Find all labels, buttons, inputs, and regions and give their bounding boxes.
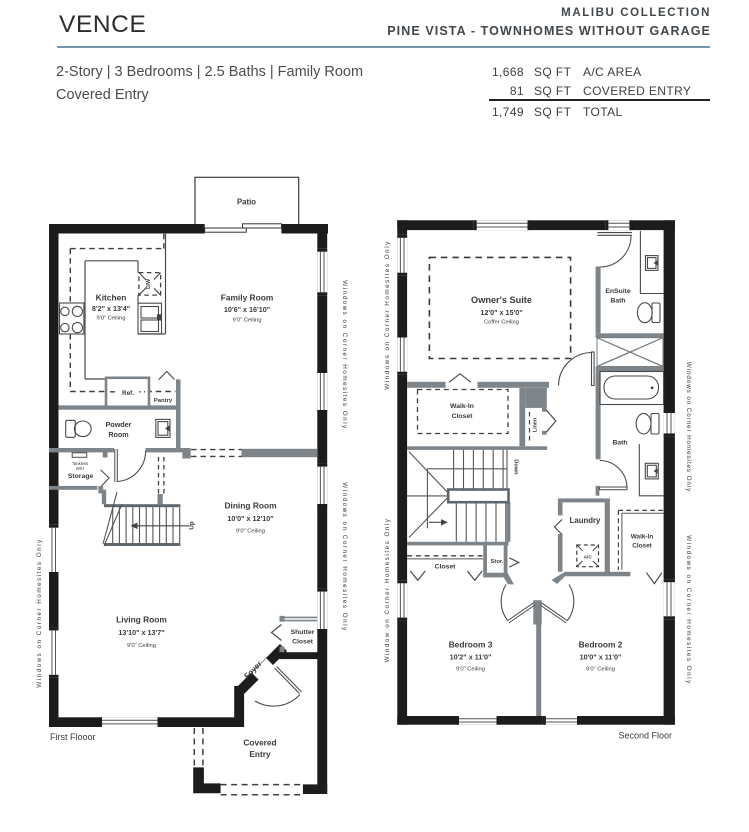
- svg-text:Kitchen: Kitchen: [96, 293, 127, 303]
- svg-text:Entry: Entry: [249, 749, 271, 759]
- svg-text:Second Floor: Second Floor: [618, 731, 672, 741]
- svg-text:Bedroom 3: Bedroom 3: [449, 640, 493, 650]
- svg-text:9'0" Ceiling: 9'0" Ceiling: [233, 318, 262, 324]
- svg-text:9'0" Ceiling: 9'0" Ceiling: [456, 667, 485, 673]
- svg-text:Dining Room: Dining Room: [224, 501, 276, 511]
- svg-text:Windows on Corner Homesites On: Windows on Corner Homesites Only: [384, 240, 391, 390]
- svg-text:Windows on Corner Homesites On: Windows on Corner Homesites Only: [341, 482, 348, 632]
- svg-text:Storage: Storage: [68, 473, 94, 480]
- svg-text:9'0" Ceiling: 9'0" Ceiling: [127, 643, 156, 649]
- svg-text:Shutter: Shutter: [291, 629, 315, 636]
- svg-text:Up: Up: [189, 521, 196, 529]
- svg-text:13'10" x 13'7": 13'10" x 13'7": [118, 628, 164, 637]
- svg-text:Closet: Closet: [435, 564, 457, 571]
- svg-text:10'6" x 16'10": 10'6" x 16'10": [224, 305, 270, 314]
- svg-text:Windows on Corner Homesites On: Windows on Corner Homesites Only: [341, 280, 348, 430]
- svg-text:Living Room: Living Room: [116, 615, 167, 625]
- svg-text:W/H: W/H: [76, 466, 84, 471]
- svg-text:10'2" x 11'0": 10'2" x 11'0": [450, 653, 492, 662]
- svg-text:8'2" x 13'4": 8'2" x 13'4": [92, 304, 130, 313]
- svg-text:Covered: Covered: [243, 738, 276, 748]
- svg-text:Closet: Closet: [632, 543, 652, 550]
- svg-text:Owner's Suite: Owner's Suite: [471, 295, 532, 305]
- svg-text:A/C: A/C: [584, 555, 593, 561]
- svg-text:Room: Room: [108, 430, 128, 439]
- svg-text:Pantry: Pantry: [154, 398, 173, 404]
- svg-text:Bath: Bath: [612, 440, 627, 447]
- svg-text:9'0" Ceiling: 9'0" Ceiling: [236, 529, 265, 535]
- svg-text:9'0" Ceiling: 9'0" Ceiling: [97, 316, 126, 322]
- svg-text:Windows on Corner Homesites On: Windows on Corner Homesites Only: [36, 538, 43, 688]
- svg-text:Bath: Bath: [610, 298, 625, 305]
- svg-text:10'0" x 11'0": 10'0" x 11'0": [580, 653, 622, 662]
- svg-text:Coffer Ceiling: Coffer Ceiling: [484, 320, 519, 326]
- svg-text:Bedroom 2: Bedroom 2: [579, 640, 623, 650]
- svg-text:Powder: Powder: [106, 420, 132, 429]
- svg-text:Closet: Closet: [452, 413, 474, 420]
- svg-text:Patio: Patio: [237, 198, 256, 207]
- svg-text:Walk-In: Walk-In: [631, 534, 654, 541]
- svg-text:Window on Corner Homesites Onl: Window on Corner Homesites Only: [384, 518, 391, 663]
- svg-text:12'0" x 15'0": 12'0" x 15'0": [480, 308, 522, 317]
- svg-text:Closet: Closet: [292, 639, 314, 646]
- svg-text:Linen: Linen: [533, 418, 539, 432]
- svg-text:Ref.: Ref.: [122, 390, 134, 397]
- svg-text:Family Room: Family Room: [221, 293, 274, 303]
- svg-text:D/W: D/W: [146, 279, 152, 289]
- svg-text:Down: Down: [513, 459, 519, 475]
- svg-text:Windows on Corner Homesites On: Windows on Corner Homesites Only: [685, 362, 692, 492]
- svg-text:Laundry: Laundry: [570, 516, 601, 525]
- svg-text:Stor.: Stor.: [491, 559, 504, 565]
- svg-text:9'0" Ceiling: 9'0" Ceiling: [586, 667, 615, 673]
- svg-text:First Flooor: First Flooor: [50, 732, 96, 742]
- svg-text:10'0" x 12'10": 10'0" x 12'10": [227, 514, 273, 523]
- svg-text:Walk-In: Walk-In: [450, 403, 474, 410]
- svg-text:EnSuite: EnSuite: [605, 288, 631, 295]
- svg-text:Windows on Corner Homesites On: Windows on Corner Homesites Only: [685, 535, 692, 685]
